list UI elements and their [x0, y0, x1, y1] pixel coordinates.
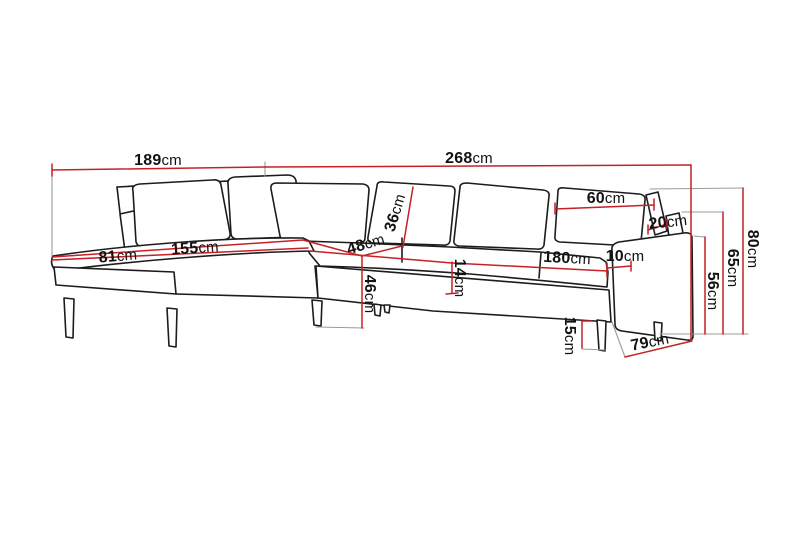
dim-label-back-cushion-width: 60cm [587, 191, 626, 207]
ext-total-height-top [650, 188, 743, 189]
dim-label-total-width: 268cm [445, 151, 493, 167]
dim-value: 268 [445, 150, 472, 167]
dim-unit: cm [198, 238, 220, 256]
leg-chaise-right [167, 308, 177, 347]
dim-value: 189 [134, 152, 161, 169]
dim-label-arm-width: 10cm [606, 249, 645, 265]
dim-label-leg-height: 15cm [561, 317, 577, 356]
back-panel-left-edge [117, 187, 120, 213]
diagram-drawing [0, 0, 800, 533]
back-cushion-right-2 [454, 183, 549, 249]
dim-value: 80 [744, 230, 761, 248]
dim-unit: cm [161, 152, 181, 169]
dim-label-seat-width: 180cm [543, 250, 591, 268]
leg-corner [312, 300, 322, 326]
ext-arm-height-top [694, 236, 705, 237]
dim-unit: cm [624, 248, 644, 265]
back-cushion-corner [271, 183, 369, 243]
dim-value: 81 [98, 248, 118, 267]
dim-value: 46 [361, 275, 378, 293]
dim-label-total-depth: 189cm [134, 153, 182, 169]
dim-value: 180 [543, 249, 571, 267]
dim-value: 20 [648, 214, 668, 233]
dim-unit: cm [724, 267, 741, 287]
dim-unit: cm [361, 293, 378, 313]
dim-label-seat-height: 46cm [361, 275, 377, 314]
dim-value: 56 [704, 272, 721, 290]
dim-unit: cm [605, 190, 625, 207]
dim-label-back-height: 65cm [724, 249, 740, 288]
leg-right-front [597, 320, 606, 351]
dim-label-seat-cushion-thickness: 14cm [451, 259, 467, 298]
dim-value: 15 [561, 317, 578, 335]
dim-unit: cm [570, 250, 591, 268]
dim-value: 155 [171, 240, 199, 259]
dim-label-total-height: 80cm [744, 230, 760, 269]
ext-seat-height-bottom [316, 327, 364, 328]
dim-value: 60 [587, 190, 605, 207]
chaise-base-front [54, 267, 176, 294]
dim-unit: cm [561, 335, 578, 355]
leg-chaise-front [64, 298, 74, 338]
dim-unit: cm [704, 290, 721, 310]
dim-unit: cm [451, 277, 468, 297]
dim-value: 14 [451, 259, 468, 277]
dim-unit: cm [472, 150, 492, 167]
dim-unit: cm [116, 246, 138, 265]
dim-unit: cm [666, 212, 688, 231]
dim-value: 65 [724, 249, 741, 267]
sofa-dimension-diagram: 189cm 268cm 60cm 20cm 10cm 180cm 14cm 36… [0, 0, 800, 533]
dim-label-arm-height: 56cm [704, 272, 720, 311]
dim-label-chaise-width: 81cm [98, 247, 138, 266]
chaise-base-inner-edge [176, 294, 318, 298]
dim-value: 10 [606, 248, 624, 265]
back-cushion-left-1 [133, 180, 230, 247]
dim-unit: cm [744, 248, 761, 268]
dim-label-chaise-length: 155cm [171, 239, 220, 258]
leg-back-small-2 [384, 305, 390, 313]
